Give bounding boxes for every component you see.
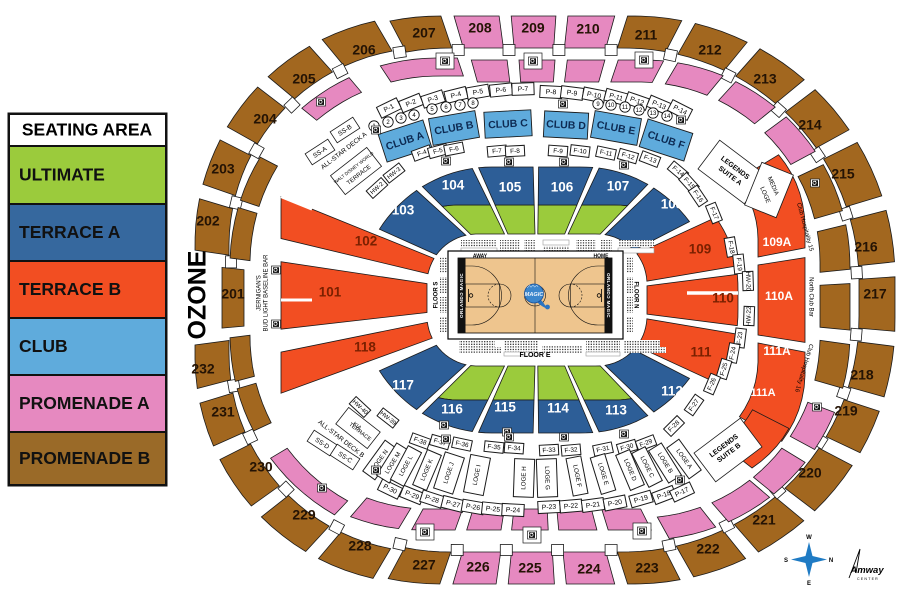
- svg-text:202: 202: [196, 213, 220, 229]
- svg-text:112: 112: [661, 384, 683, 399]
- svg-text:218: 218: [850, 367, 874, 383]
- svg-text:FLOOR S: FLOOR S: [434, 282, 440, 309]
- svg-text:P-8: P-8: [546, 89, 557, 97]
- svg-text:CLUB C: CLUB C: [488, 117, 529, 131]
- svg-text:110: 110: [712, 291, 734, 306]
- svg-text:107: 107: [607, 179, 630, 194]
- svg-text:E: E: [807, 581, 811, 587]
- svg-text:223: 223: [635, 560, 659, 576]
- svg-text:116: 116: [441, 402, 463, 417]
- svg-text:110A: 110A: [765, 289, 793, 303]
- svg-text:209: 209: [521, 20, 545, 36]
- svg-text:231: 231: [211, 404, 235, 420]
- svg-text:BUD LIGHT BASELINE BAR: BUD LIGHT BASELINE BAR: [264, 254, 270, 332]
- svg-text:224: 224: [577, 561, 601, 577]
- svg-text:F-19: F-19: [735, 257, 743, 271]
- svg-text:N: N: [829, 558, 833, 564]
- svg-text:F-33: F-33: [542, 447, 556, 455]
- svg-text:SEATING AREA: SEATING AREA: [22, 120, 153, 140]
- svg-text:HW-20: HW-20: [744, 271, 752, 291]
- svg-text:229: 229: [292, 507, 316, 523]
- svg-text:228: 228: [348, 538, 372, 554]
- svg-text:F-34: F-34: [507, 445, 521, 453]
- svg-text:P-6: P-6: [495, 87, 506, 95]
- svg-text:118: 118: [354, 340, 376, 355]
- svg-text:F-8: F-8: [510, 148, 520, 156]
- svg-text:AWAY: AWAY: [473, 254, 488, 260]
- svg-text:PROMENADE B: PROMENADE B: [19, 448, 150, 468]
- svg-text:210: 210: [576, 21, 600, 37]
- svg-text:219: 219: [834, 403, 858, 419]
- svg-text:201: 201: [221, 286, 245, 302]
- svg-text:FLOOR E: FLOOR E: [519, 352, 550, 359]
- svg-text:106: 106: [551, 180, 574, 195]
- svg-text:F-35: F-35: [487, 443, 501, 451]
- svg-text:211: 211: [635, 27, 658, 43]
- svg-text:221: 221: [752, 512, 776, 528]
- svg-text:P-22: P-22: [564, 502, 579, 510]
- svg-text:230: 230: [249, 459, 273, 475]
- svg-text:LOGE G: LOGE G: [543, 466, 551, 490]
- svg-text:204: 204: [253, 111, 277, 127]
- svg-text:205: 205: [292, 71, 316, 87]
- svg-text:225: 225: [518, 560, 542, 576]
- svg-text:P-24: P-24: [506, 507, 521, 515]
- svg-text:OZONE: OZONE: [184, 251, 212, 340]
- svg-text:215: 215: [831, 166, 855, 182]
- svg-text:111: 111: [690, 345, 712, 360]
- svg-text:207: 207: [412, 25, 436, 41]
- svg-text:TERRACE B: TERRACE B: [19, 279, 121, 299]
- svg-text:103: 103: [392, 203, 415, 218]
- svg-text:115: 115: [494, 400, 516, 415]
- svg-text:MAGIC: MAGIC: [525, 292, 545, 298]
- svg-text:Amway: Amway: [849, 565, 884, 576]
- svg-text:217: 217: [863, 286, 887, 302]
- svg-text:HOME: HOME: [594, 254, 610, 260]
- svg-text:JERNIGAN'S: JERNIGAN'S: [257, 275, 263, 310]
- svg-text:117: 117: [392, 378, 414, 393]
- svg-text:FLOOR N: FLOOR N: [632, 282, 638, 309]
- svg-text:101: 101: [319, 285, 342, 300]
- svg-text:216: 216: [854, 239, 878, 255]
- svg-text:203: 203: [211, 161, 235, 177]
- svg-text:222: 222: [696, 541, 720, 557]
- svg-text:108: 108: [661, 197, 684, 212]
- svg-text:13: 13: [650, 111, 657, 117]
- svg-text:North Club Bar: North Club Bar: [807, 277, 813, 317]
- svg-text:CLUB D: CLUB D: [546, 118, 587, 132]
- svg-text:102: 102: [355, 234, 378, 249]
- svg-text:212: 212: [698, 42, 722, 58]
- svg-text:P-23: P-23: [542, 504, 557, 512]
- svg-text:11: 11: [622, 105, 629, 111]
- svg-text:CLUB: CLUB: [19, 336, 68, 356]
- svg-text:ULTIMATE: ULTIMATE: [19, 165, 105, 185]
- svg-text:HW-22: HW-22: [745, 306, 753, 326]
- svg-text:104: 104: [442, 178, 465, 193]
- svg-text:LOGE H: LOGE H: [520, 466, 528, 490]
- svg-text:109: 109: [689, 242, 712, 257]
- svg-text:10: 10: [608, 103, 615, 109]
- svg-text:220: 220: [798, 465, 822, 481]
- svg-text:TERRACE A: TERRACE A: [19, 222, 121, 242]
- svg-text:CENTER: CENTER: [857, 577, 879, 581]
- svg-text:F-9: F-9: [553, 148, 563, 156]
- svg-text:206: 206: [352, 42, 376, 58]
- svg-text:F-32: F-32: [564, 446, 578, 454]
- svg-text:109A: 109A: [763, 235, 792, 249]
- svg-text:12: 12: [636, 108, 643, 114]
- svg-text:227: 227: [412, 557, 436, 573]
- svg-text:111A: 111A: [763, 344, 791, 358]
- svg-text:S: S: [784, 558, 788, 564]
- svg-text:PROMENADE A: PROMENADE A: [19, 393, 150, 413]
- svg-text:232: 232: [191, 361, 215, 377]
- svg-text:113: 113: [605, 403, 627, 418]
- svg-text:114: 114: [547, 401, 569, 416]
- svg-text:105: 105: [499, 180, 522, 195]
- svg-text:W: W: [806, 535, 812, 541]
- svg-text:111A: 111A: [750, 387, 775, 399]
- svg-text:14: 14: [664, 114, 671, 120]
- svg-text:226: 226: [466, 559, 490, 575]
- svg-text:213: 213: [753, 71, 777, 87]
- svg-text:P-25: P-25: [485, 505, 500, 513]
- svg-text:214: 214: [798, 117, 822, 133]
- svg-text:P-7: P-7: [518, 86, 529, 93]
- svg-text:208: 208: [468, 20, 492, 36]
- svg-text:F-7: F-7: [492, 148, 503, 156]
- svg-text:P-9: P-9: [566, 89, 578, 97]
